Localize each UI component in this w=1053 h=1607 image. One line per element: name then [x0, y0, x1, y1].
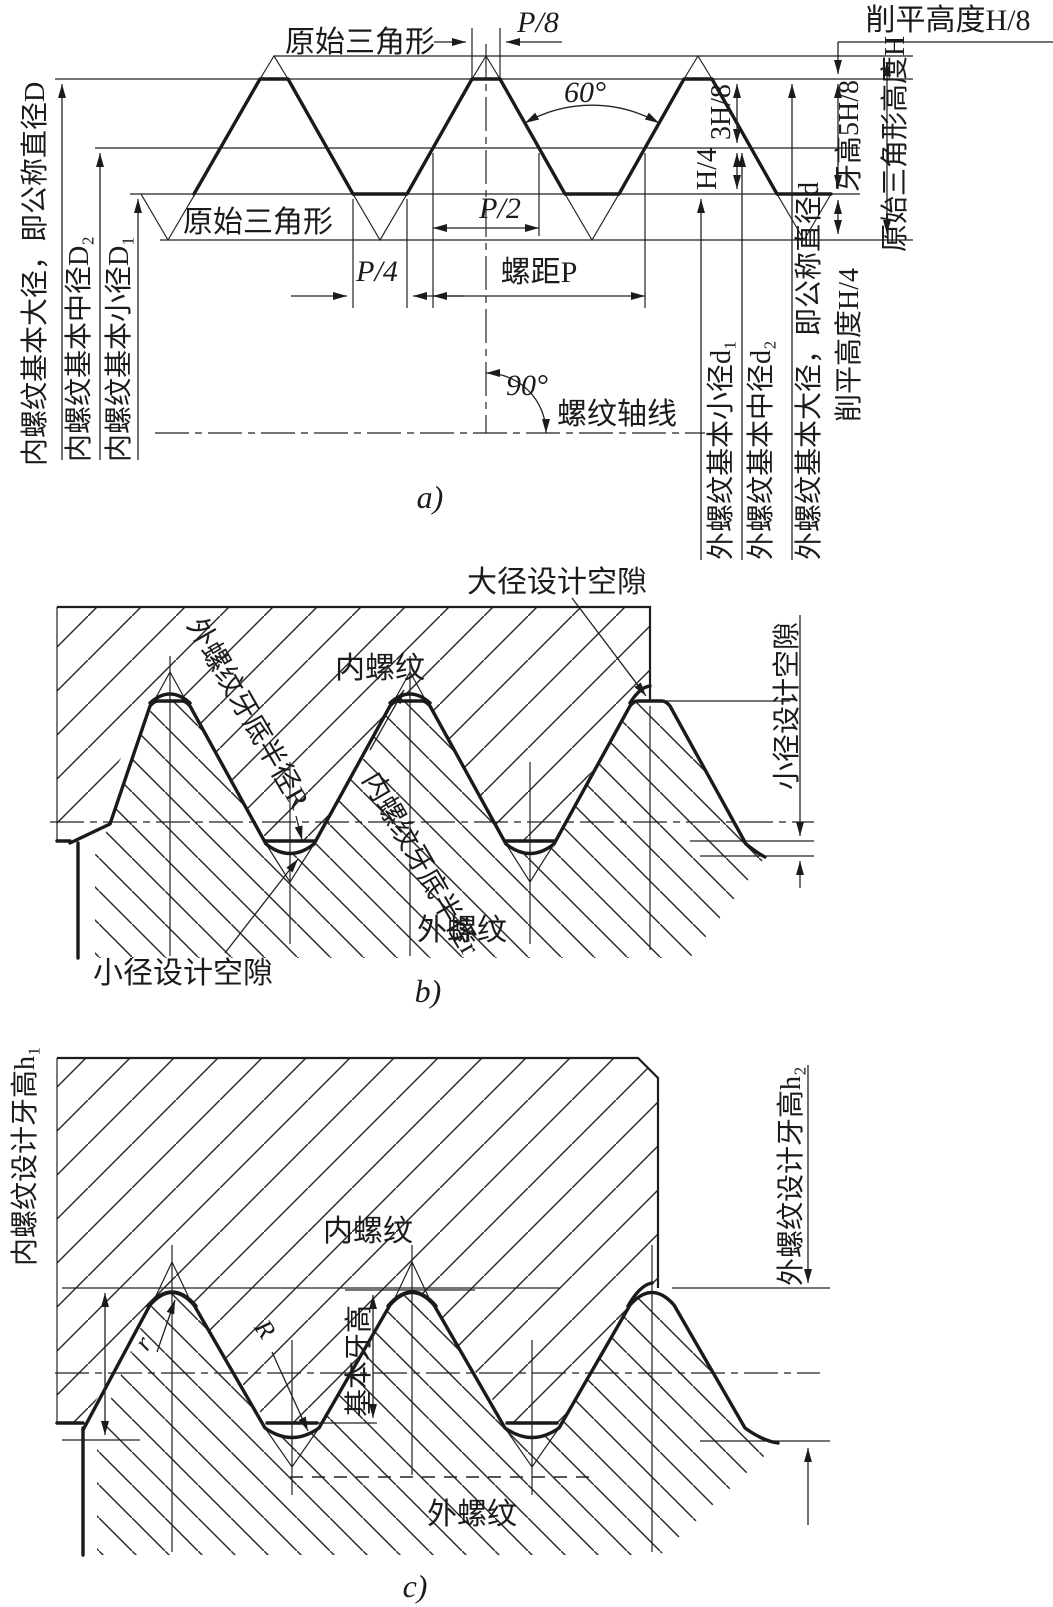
flat-height-h8-label: 削平高度H/8: [866, 4, 1031, 37]
original-triangle-top-label: 原始三角形: [285, 26, 435, 59]
figure-c-caption: c): [403, 1568, 428, 1604]
label-triangle-height-H: 原始三角形高度H: [879, 36, 911, 252]
angle-60-label: 60°: [564, 76, 606, 109]
label-internal-major-D: 内螺纹基本大径，即公称直径D: [19, 82, 51, 466]
label-external-minor-d1: 外螺纹基本小径d₁: [705, 340, 737, 560]
original-triangle-lower-label: 原始三角形: [183, 206, 333, 239]
label-internal-pitch-D2: 内螺纹基本中径D₂: [63, 236, 95, 462]
p2-label: P/2: [478, 192, 521, 225]
label-flat-height-H4: 削平高度H/4: [833, 268, 865, 422]
thread-axis-label: 螺纹轴线: [557, 398, 677, 431]
major-clearance-label: 大径设计空隙: [467, 566, 647, 599]
minor-clearance-right-label: 小径设计空隙: [771, 622, 803, 790]
figure-b-caption: b): [415, 973, 442, 1009]
internal-thread-label-b: 内螺纹: [335, 652, 425, 685]
label-external-pitch-d2: 外螺纹基本中径d₂: [745, 340, 777, 560]
label-internal-minor-D1: 内螺纹基本小径D₁: [103, 236, 135, 462]
external-thread-label-c: 外螺纹: [427, 1498, 517, 1531]
diagram-svg: 原始三角形 P/8 削平高度H/8 60° P/2 P/4 螺距P 原始三角形 …: [0, 0, 1053, 1607]
internal-design-height-label: 内螺纹设计牙高h₁: [9, 1046, 41, 1266]
external-design-height-label: 外螺纹设计牙高h₂: [775, 1066, 807, 1286]
pitch-label: 螺距P: [501, 256, 578, 289]
angle-90-label: 90°: [506, 369, 548, 402]
figure-a-caption: a): [417, 479, 444, 515]
label-tooth-height-5H8: 牙高5H/8: [833, 80, 865, 192]
label-H4: H/4: [692, 148, 723, 190]
p8-label: P/8: [516, 6, 559, 39]
label-external-major-d: 外螺纹基本大径，即公称直径d: [793, 182, 825, 560]
label-3H8: 3H/8: [706, 84, 737, 140]
internal-thread-label-c: 内螺纹: [323, 1215, 413, 1248]
basic-height-label: 基本牙高: [343, 1305, 375, 1417]
minor-clearance-left-label: 小径设计空隙: [93, 957, 273, 990]
thread-geometry-diagram-page: 原始三角形 P/8 削平高度H/8 60° P/2 P/4 螺距P 原始三角形 …: [0, 0, 1053, 1607]
p4-label: P/4: [355, 255, 398, 288]
